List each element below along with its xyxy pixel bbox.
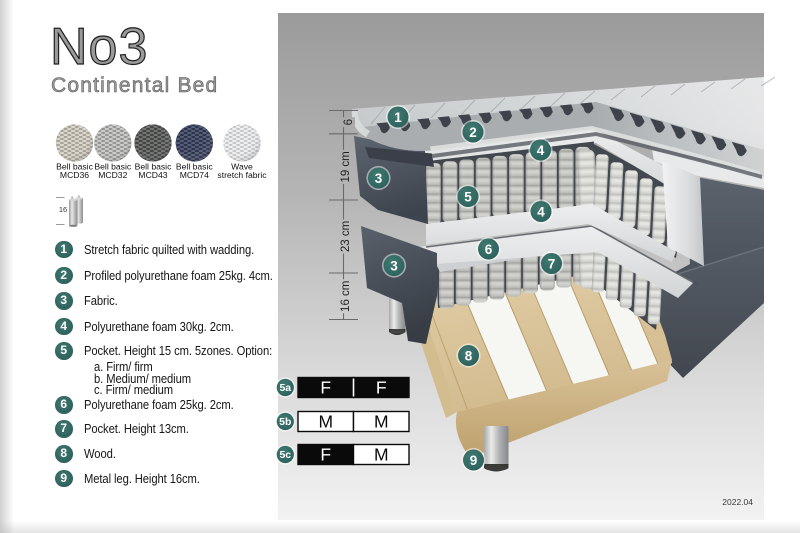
svg-text:6: 6 — [343, 119, 355, 125]
svg-text:F: F — [320, 378, 331, 398]
svg-text:4: 4 — [537, 143, 545, 158]
svg-text:F: F — [376, 378, 387, 398]
svg-text:F: F — [320, 445, 331, 465]
svg-text:M: M — [374, 412, 389, 432]
svg-text:5c: 5c — [279, 449, 291, 461]
svg-text:9: 9 — [470, 453, 478, 468]
svg-text:3: 3 — [375, 171, 383, 186]
svg-text:4: 4 — [537, 204, 545, 219]
svg-text:2: 2 — [469, 125, 477, 140]
svg-text:16 cm: 16 cm — [340, 281, 352, 312]
svg-text:1: 1 — [394, 110, 402, 125]
svg-text:6: 6 — [485, 242, 493, 257]
svg-text:3: 3 — [390, 258, 398, 273]
svg-text:8: 8 — [465, 348, 473, 363]
svg-text:M: M — [374, 445, 389, 465]
svg-text:2022.04: 2022.04 — [722, 497, 753, 507]
svg-text:5a: 5a — [279, 382, 291, 394]
svg-text:23 cm: 23 cm — [340, 221, 352, 252]
svg-text:M: M — [318, 412, 333, 432]
svg-text:7: 7 — [548, 256, 556, 271]
svg-text:5b: 5b — [279, 416, 291, 428]
svg-text:5: 5 — [464, 189, 472, 204]
svg-text:19 cm: 19 cm — [340, 151, 352, 182]
